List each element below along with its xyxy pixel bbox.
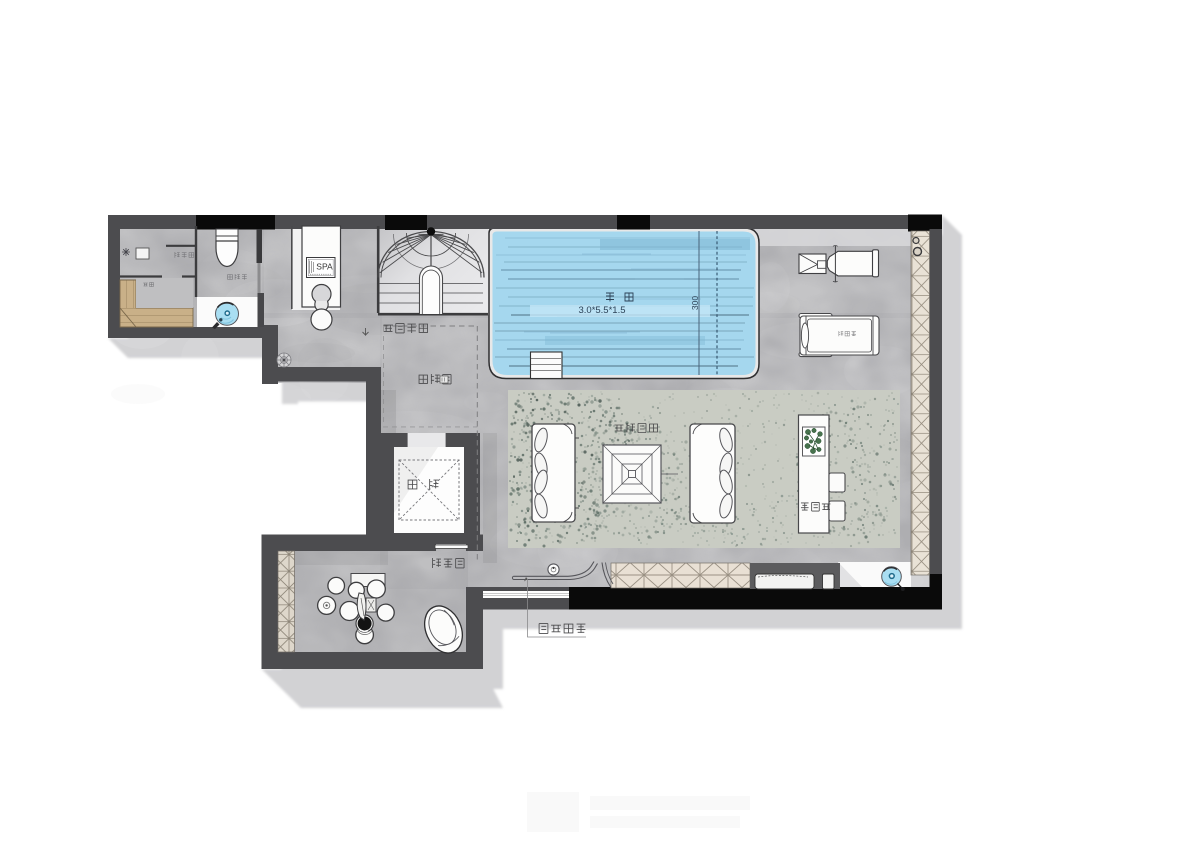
svg-text:300: 300	[690, 296, 700, 310]
svg-text:SPA: SPA	[316, 262, 333, 272]
svg-text:3.0*5.5*1.5: 3.0*5.5*1.5	[578, 305, 625, 316]
